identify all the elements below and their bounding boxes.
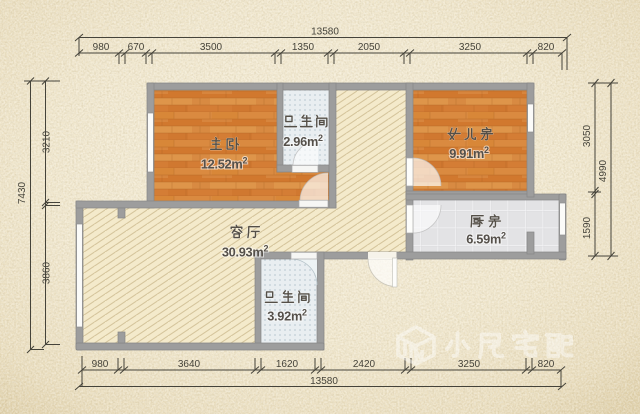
svg-text:3050: 3050 bbox=[582, 124, 593, 147]
svg-text:1590: 1590 bbox=[582, 216, 593, 239]
svg-text:1350: 1350 bbox=[292, 42, 315, 53]
svg-text:3250: 3250 bbox=[459, 42, 482, 53]
svg-text:2420: 2420 bbox=[353, 359, 376, 370]
svg-text:9.91m2: 9.91m2 bbox=[449, 145, 489, 161]
svg-text:3640: 3640 bbox=[178, 359, 201, 370]
svg-text:820: 820 bbox=[538, 42, 555, 53]
svg-text:2050: 2050 bbox=[358, 42, 381, 53]
svg-text:670: 670 bbox=[128, 42, 145, 53]
svg-text:980: 980 bbox=[93, 42, 110, 53]
svg-text:3210: 3210 bbox=[42, 130, 53, 153]
svg-text:2.96m2: 2.96m2 bbox=[283, 133, 323, 149]
svg-text:820: 820 bbox=[538, 359, 555, 370]
svg-text:12.52m2: 12.52m2 bbox=[201, 156, 248, 172]
svg-text:4990: 4990 bbox=[598, 159, 609, 182]
svg-text:980: 980 bbox=[92, 359, 109, 370]
svg-text:6.59m2: 6.59m2 bbox=[466, 231, 506, 247]
svg-text:3860: 3860 bbox=[42, 261, 53, 284]
svg-text:3500: 3500 bbox=[200, 42, 223, 53]
svg-text:3.92m2: 3.92m2 bbox=[267, 308, 307, 324]
svg-text:7430: 7430 bbox=[17, 181, 28, 204]
svg-text:13580: 13580 bbox=[310, 376, 338, 387]
svg-text:3250: 3250 bbox=[458, 359, 481, 370]
svg-text:13580: 13580 bbox=[311, 27, 339, 38]
svg-text:30.93m2: 30.93m2 bbox=[222, 244, 269, 260]
svg-text:1620: 1620 bbox=[276, 359, 299, 370]
